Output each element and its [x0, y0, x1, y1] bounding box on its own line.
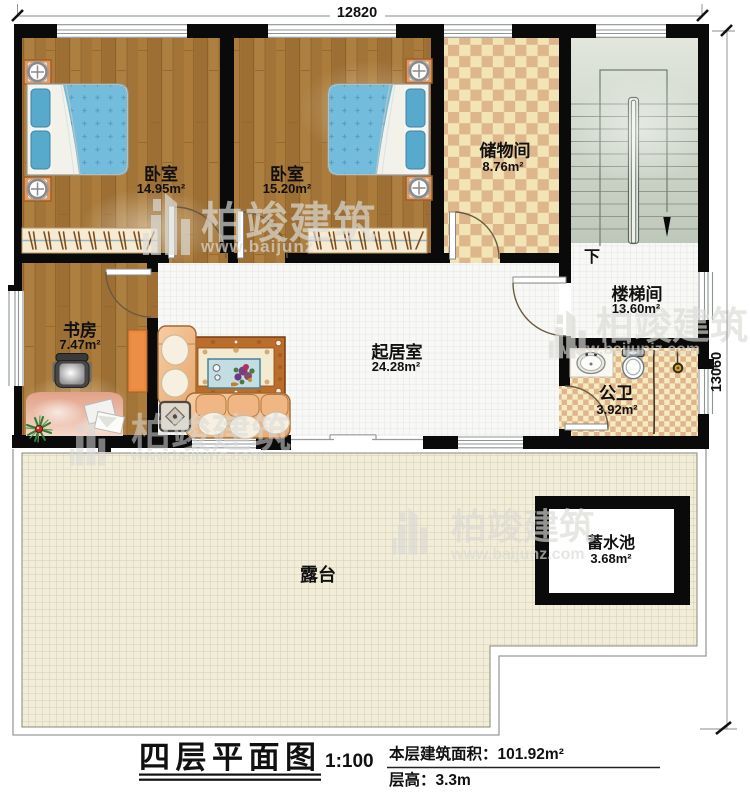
svg-text:四层平面图: 四层平面图 — [139, 740, 322, 775]
svg-text:www.baijunz.com: www.baijunz.com — [450, 546, 585, 563]
svg-text:13060: 13060 — [709, 352, 725, 392]
svg-text:储物间: 储物间 — [480, 141, 531, 161]
svg-text:8.76m²: 8.76m² — [482, 159, 524, 174]
svg-text:露台: 露台 — [300, 564, 336, 585]
svg-text:12820: 12820 — [337, 5, 377, 21]
svg-text:15.20m²: 15.20m² — [263, 181, 312, 196]
svg-text:3.68m²: 3.68m² — [590, 551, 632, 566]
svg-text:13.60m²: 13.60m² — [612, 301, 661, 316]
svg-text:14.95m²: 14.95m² — [137, 181, 186, 196]
svg-text:www.baijuniz.com: www.baijuniz.com — [561, 341, 700, 358]
svg-text:www.baijunz.com: www.baijunz.com — [130, 448, 265, 465]
svg-text:公卫: 公卫 — [599, 384, 633, 403]
svg-text:24.28m²: 24.28m² — [372, 359, 421, 374]
svg-text:7.47m²: 7.47m² — [59, 337, 101, 352]
svg-text:层高：3.3m: 层高：3.3m — [389, 770, 471, 789]
svg-text:www.baijunz: www.baijunz — [200, 237, 314, 256]
svg-text:下: 下 — [584, 249, 600, 266]
svg-text:柏竣建筑: 柏竣建筑 — [451, 506, 595, 547]
svg-text:本层建筑面积：101.92m²: 本层建筑面积：101.92m² — [389, 744, 564, 763]
svg-text:3.92m²: 3.92m² — [596, 402, 638, 417]
svg-text:1:100: 1:100 — [325, 751, 374, 772]
